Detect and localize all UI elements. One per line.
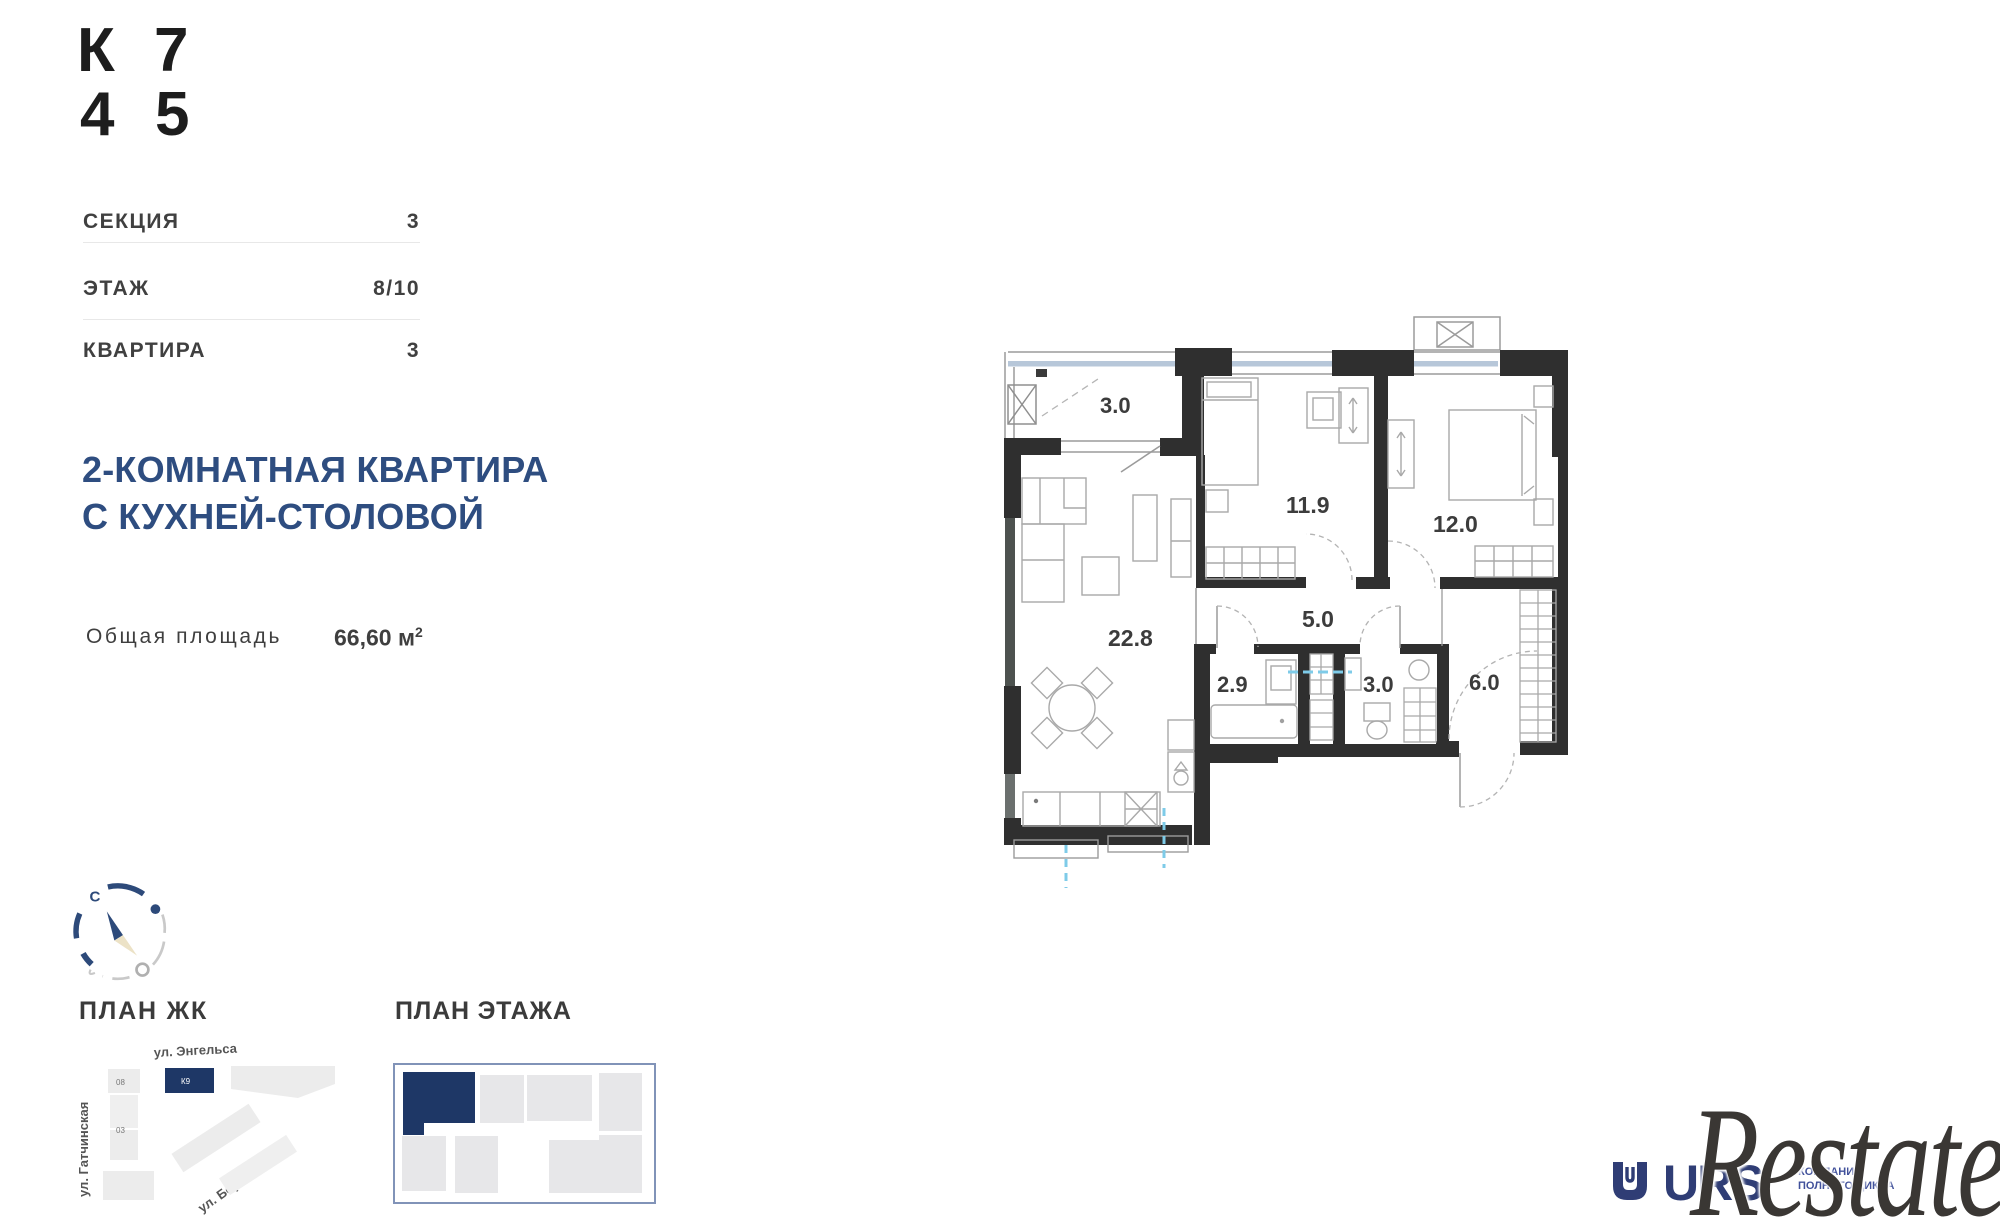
svg-text:С: С [90, 889, 101, 906]
svg-text:К9: К9 [181, 1077, 191, 1086]
svg-text:08: 08 [116, 1078, 125, 1087]
svg-text:ул. Гатчинская: ул. Гатчинская [76, 1102, 91, 1197]
svg-text:11.9: 11.9 [1286, 492, 1330, 518]
svg-text:5.0: 5.0 [1302, 606, 1334, 632]
svg-text:3.0: 3.0 [1100, 393, 1131, 418]
svg-text:ул. Энгельса: ул. Энгельса [153, 1041, 238, 1060]
svg-text:6.0: 6.0 [1469, 670, 1500, 695]
svg-text:2.9: 2.9 [1217, 672, 1248, 697]
svg-text:3.0: 3.0 [1363, 672, 1394, 697]
svg-text:03: 03 [116, 1126, 125, 1135]
svg-text:12.0: 12.0 [1433, 511, 1478, 537]
svg-text:22.8: 22.8 [1108, 625, 1153, 651]
